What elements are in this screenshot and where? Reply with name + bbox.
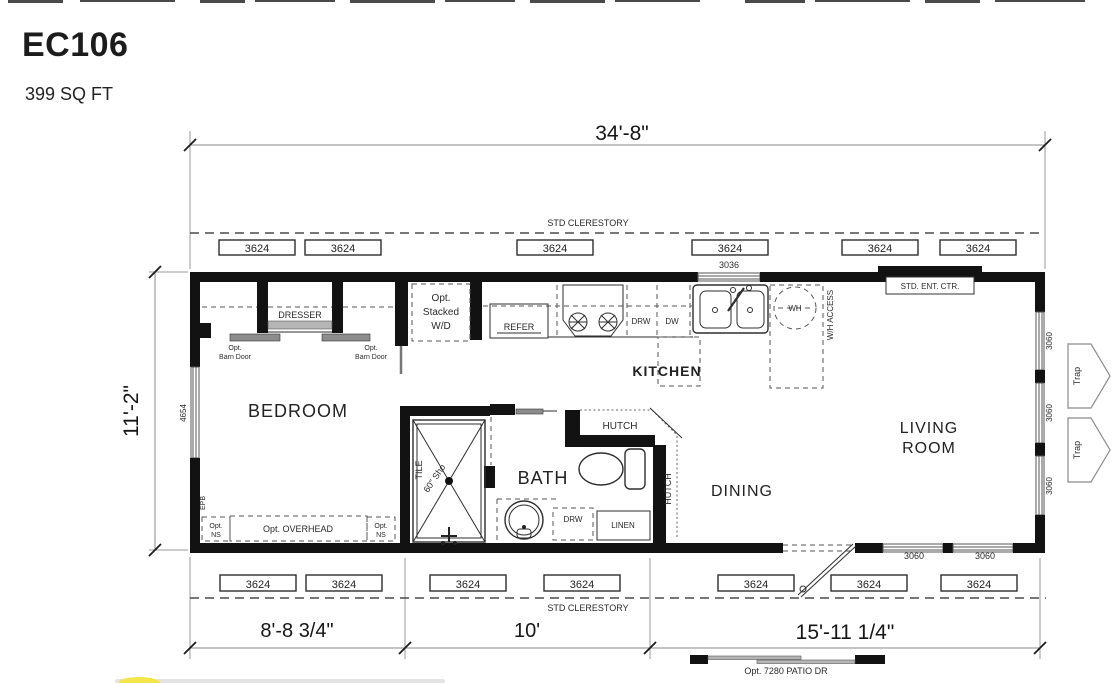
- dw-label: DW: [665, 317, 679, 326]
- barn-door-label: Barn Door: [355, 354, 388, 361]
- window-row-top: 3624 3624 3624 3624 3624 3624 3036: [219, 240, 1016, 270]
- ns-label: NS: [376, 532, 386, 539]
- stacked-wd: Opt. Stacked W/D: [412, 284, 470, 341]
- trap-label: Trap: [1072, 441, 1082, 459]
- window-3624: 3624: [718, 243, 742, 255]
- wh-label: WH: [788, 304, 802, 313]
- bedroom-area: DRESSER Opt. Barn Door Opt. Barn Door BE…: [200, 307, 401, 541]
- barn-door-label: Barn Door: [219, 354, 252, 361]
- dresser-label: DRESSER: [278, 310, 322, 320]
- bath-sink: [497, 499, 556, 542]
- window-3624: 3624: [570, 579, 594, 591]
- window-row-bottom: 3624 3624 3624 3624 3624 3624 3624 3060 …: [220, 551, 1017, 591]
- window-4654-label: 4654: [179, 404, 188, 422]
- hutch-label: HUTCH: [603, 421, 638, 432]
- window-3624: 3624: [967, 579, 991, 591]
- entry-door: [798, 544, 856, 597]
- living-room-label-2: ROOM: [902, 440, 956, 457]
- barn-door-track: [230, 334, 280, 341]
- dimension-overall-depth: 11'-2": [120, 266, 188, 556]
- window-3624: 3624: [456, 579, 480, 591]
- window-3036-label: 3036: [719, 260, 739, 270]
- patio-door-option: Opt. 7280 PATIO DR: [690, 655, 885, 676]
- dim-seg3-label: 15'-11 1/4": [796, 621, 895, 644]
- dining-label: DINING: [711, 483, 773, 500]
- floorplan-page: EC106 399 SQ FT 34'-8" 11'-2": [0, 0, 1112, 683]
- toilet: [579, 449, 645, 489]
- trap-arrow: Trap: [1068, 418, 1110, 482]
- burner: [569, 313, 587, 331]
- window-3624: 3624: [744, 579, 768, 591]
- window-3624: 3624: [332, 579, 356, 591]
- bottom-edge-artifact: [115, 679, 445, 683]
- stacked-label: Stacked: [423, 307, 459, 318]
- hutch-label: HUTCH: [663, 473, 673, 505]
- dimension-overall-width: 34'-8": [184, 122, 1051, 269]
- clerestory-bottom: STD CLERESTORY: [190, 598, 1046, 613]
- opt-label: Opt.: [209, 523, 222, 530]
- window-3060-label: 3060: [1045, 332, 1054, 350]
- drw-label: DRW: [564, 515, 583, 524]
- kitchen-sink: [693, 285, 768, 333]
- window-3624: 3624: [868, 243, 892, 255]
- shower: TILE 60" Sho: [413, 420, 485, 545]
- trap-label: Trap: [1072, 367, 1082, 385]
- trap-arrow: Trap: [1068, 344, 1110, 408]
- hutch-kitchen: HUTCH: [580, 408, 682, 438]
- window-3624: 3624: [246, 579, 270, 591]
- window-3624: 3624: [331, 243, 355, 255]
- opt-label: Opt.: [374, 523, 387, 530]
- dresser-shelf: [268, 321, 332, 329]
- burner: [599, 313, 617, 331]
- opt-label: Opt.: [228, 345, 241, 352]
- opt-overhead-label: Opt. OVERHEAD: [263, 524, 334, 534]
- wd-label: W/D: [431, 321, 450, 332]
- tile-label: TILE: [414, 460, 424, 479]
- water-heater: WH: [770, 285, 823, 388]
- drw-label: DRW: [632, 317, 651, 326]
- linen-label: LINEN: [611, 521, 635, 530]
- bath-door-leaf: [516, 409, 543, 414]
- ns-label: NS: [211, 532, 221, 539]
- window-3624: 3624: [966, 243, 990, 255]
- barn-door-track: [322, 334, 370, 341]
- clerestory-bottom-label: STD CLERESTORY: [547, 603, 628, 613]
- wh-access-label: W/H ACCESS: [826, 290, 835, 340]
- window-3060-label: 3060: [1045, 404, 1054, 422]
- window-3624: 3624: [245, 243, 269, 255]
- bath-label: BATH: [518, 468, 569, 488]
- opt-label: Opt.: [432, 293, 451, 304]
- living-room-label-1: LIVING: [900, 420, 958, 437]
- dim-seg2-label: 10': [514, 620, 540, 642]
- floorplan-drawing: 34'-8" 11'-2" 8'-8 3/4" 10' 15'-11 1/4": [0, 0, 1112, 683]
- window-3624: 3624: [543, 243, 567, 255]
- dim-width-label: 34'-8": [595, 122, 649, 145]
- refer-label: REFER: [504, 322, 535, 332]
- bedroom-label: BEDROOM: [248, 401, 348, 421]
- dim-seg1-label: 8'-8 3/4": [260, 620, 333, 642]
- dim-depth-label: 11'-2": [120, 385, 143, 437]
- ent-ctr-label: STD. ENT. CTR.: [901, 282, 960, 291]
- window-3060-label: 3060: [1045, 477, 1054, 495]
- opt-label: Opt.: [364, 345, 377, 352]
- patio-door-label: Opt. 7280 PATIO DR: [744, 666, 828, 676]
- epb-label: EPB: [200, 496, 207, 510]
- bath-drawer: [553, 508, 593, 540]
- clerestory-top-label: STD CLERESTORY: [547, 218, 628, 228]
- clerestory-top: STD CLERESTORY: [190, 218, 1045, 233]
- kitchen-label: KITCHEN: [632, 363, 701, 379]
- kitchen-area: REFER DRW DW: [483, 277, 974, 388]
- bottom-edge-logo-artifact: [118, 677, 160, 683]
- window-3624: 3624: [857, 579, 881, 591]
